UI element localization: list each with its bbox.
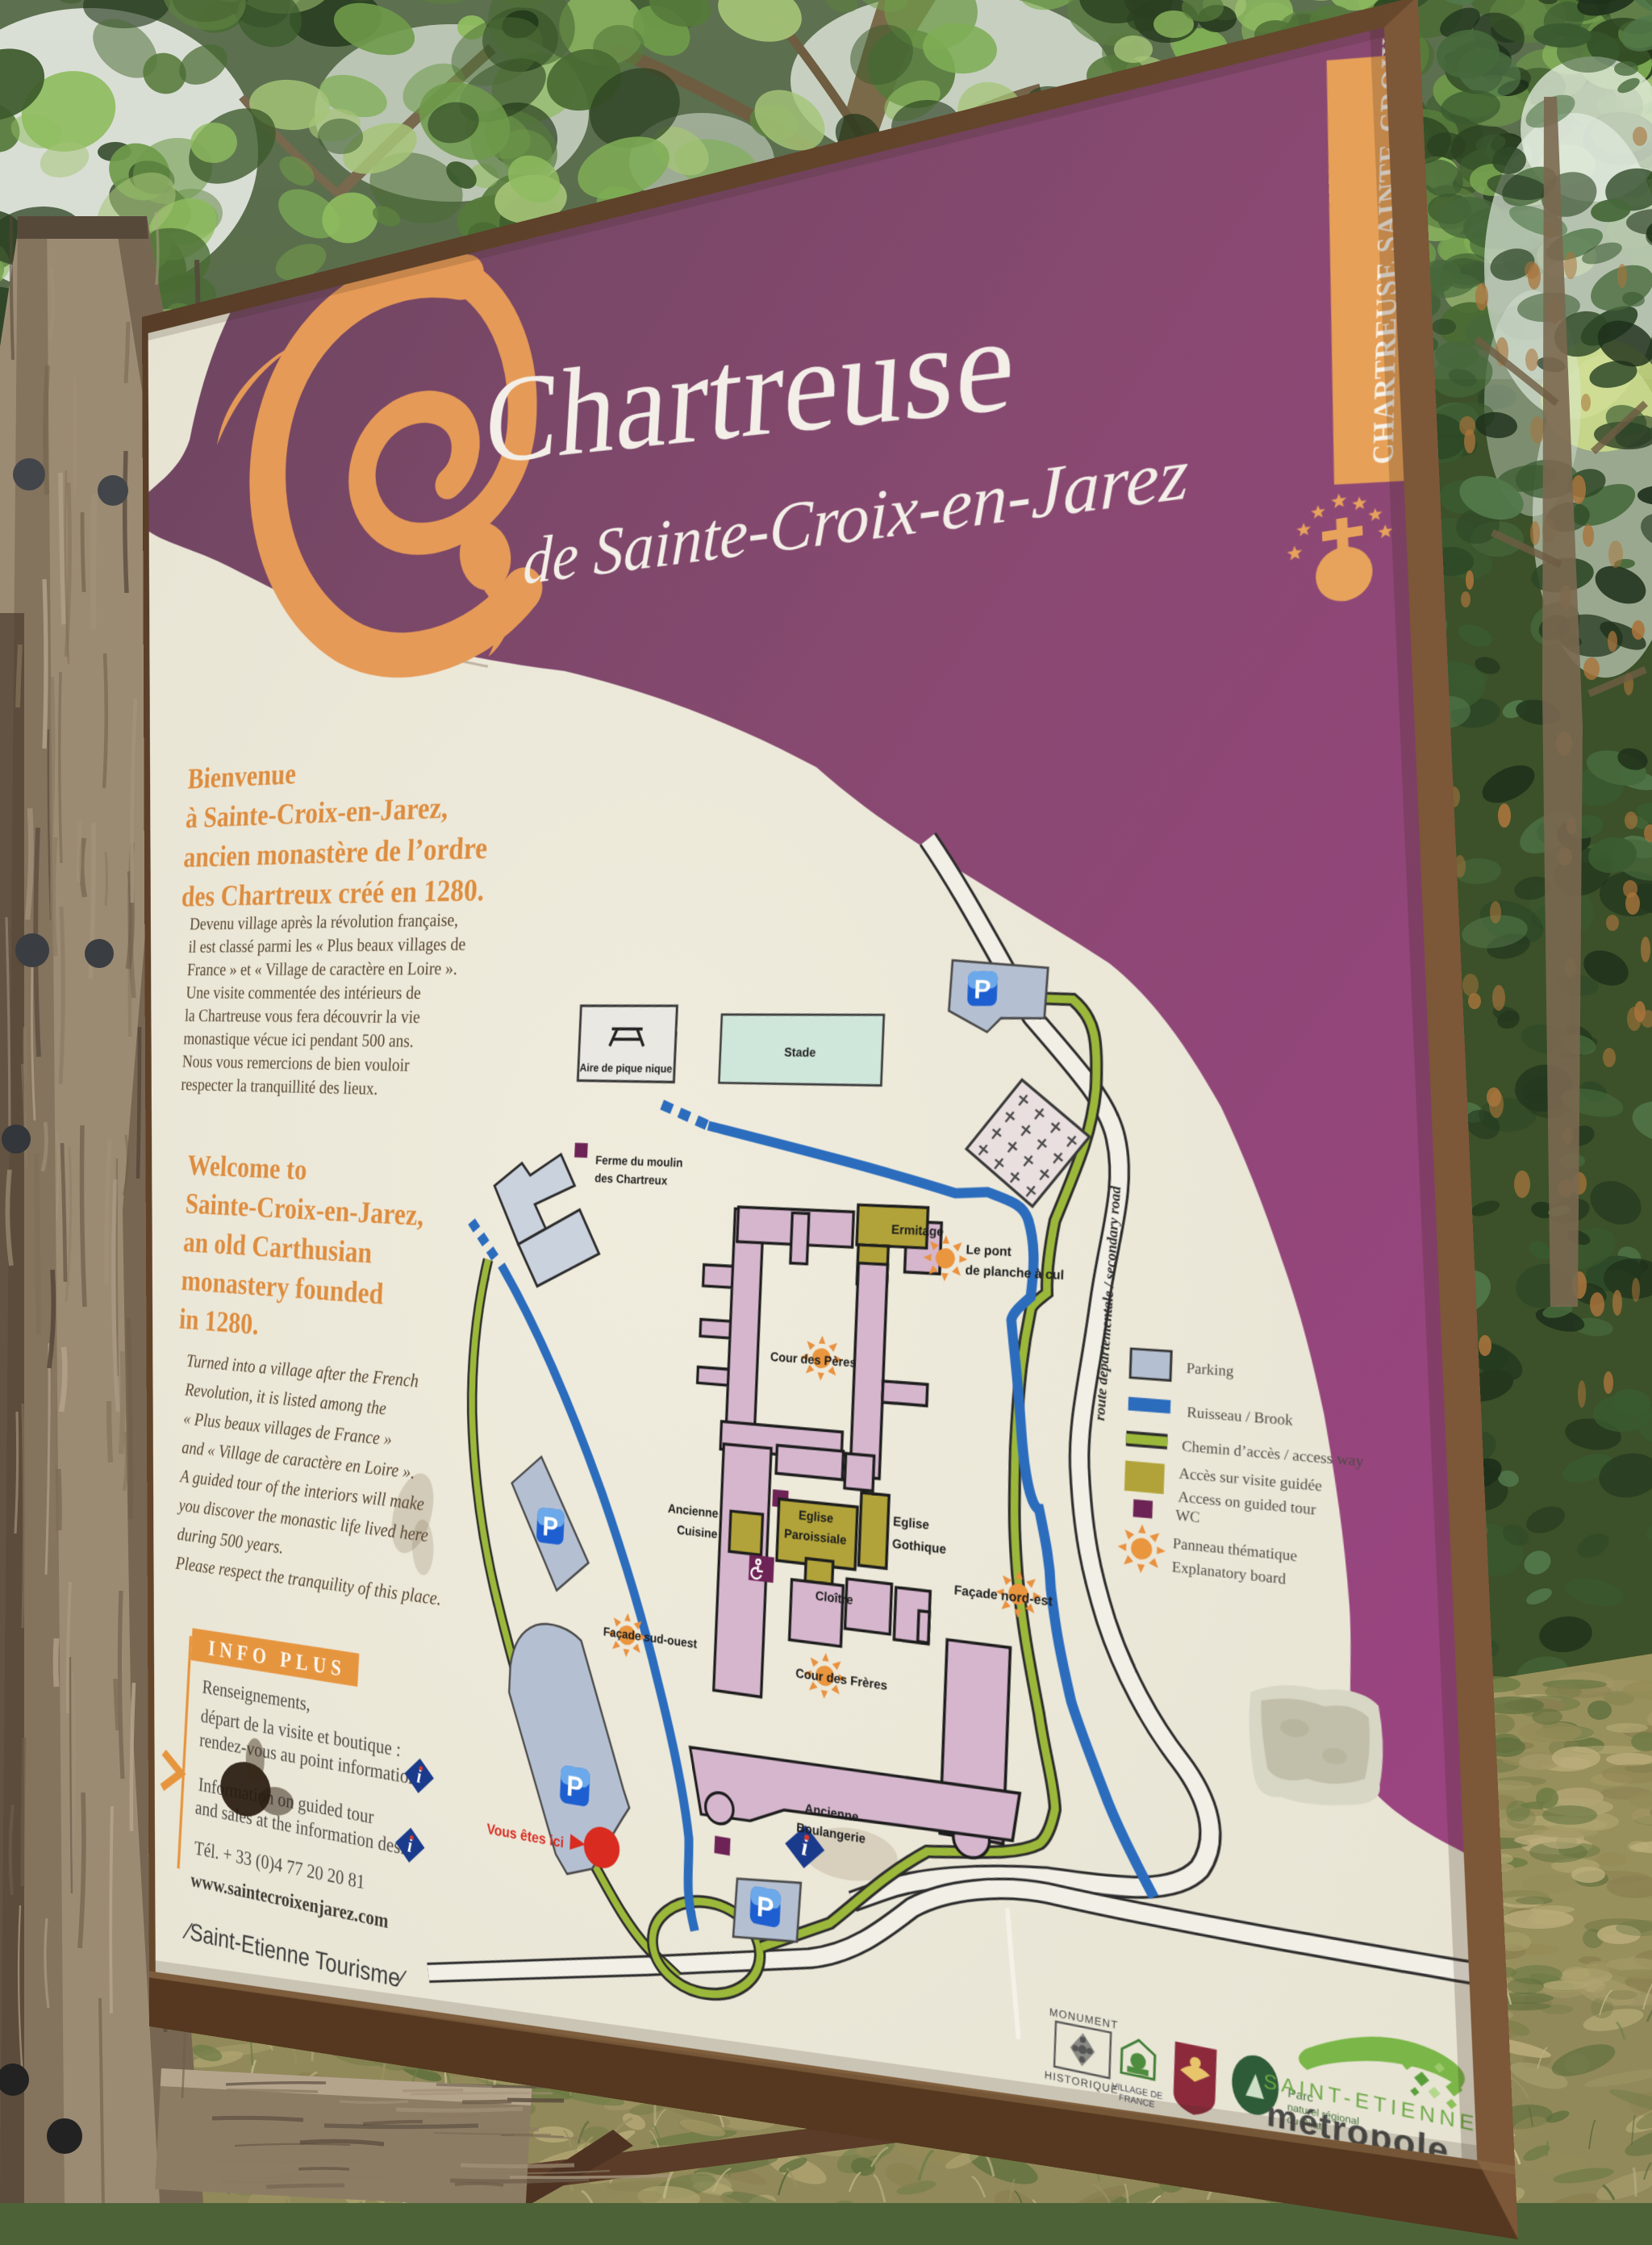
svg-text:Le pont: Le pont [966,1242,1012,1259]
svg-text:P: P [974,975,992,1005]
svg-text:des Chartreux créé en 1280.: des Chartreux créé en 1280. [181,873,485,913]
svg-text:WC: WC [1175,1506,1200,1526]
svg-text:monastique vécue ici pendant 5: monastique vécue ici pendant 500 ans. [183,1029,414,1052]
svg-text:Ermitage: Ermitage [891,1223,945,1240]
svg-text:P: P [565,1769,584,1805]
svg-text:Aire de pique nique: Aire de pique nique [579,1062,672,1076]
svg-text:Une visite commentée des intér: Une visite commentée des intérieurs de [186,983,421,1004]
svg-text:France » et « Village de carac: France » et « Village de caractère en Lo… [187,958,458,979]
svg-text:des Chartreux: des Chartreux [594,1172,668,1188]
svg-text:Devenu village après la révolu: Devenu village après la révolution franç… [190,910,459,934]
svg-text:Stade: Stade [784,1045,816,1060]
svg-text:il est classé parmi les « Plus: il est classé parmi les « Plus beaux vil… [188,934,466,957]
svg-text:Welcome to: Welcome to [186,1148,307,1186]
svg-text:Bienvenue: Bienvenue [187,757,297,795]
svg-text:Parking: Parking [1186,1358,1234,1379]
svg-text:P: P [756,1889,774,1926]
svg-text:la Chartreuse vous fera découv: la Chartreuse vous fera découvrir la vie [184,1006,420,1028]
svg-text:in 1280.: in 1280. [178,1302,260,1342]
svg-text:P: P [542,1510,559,1543]
